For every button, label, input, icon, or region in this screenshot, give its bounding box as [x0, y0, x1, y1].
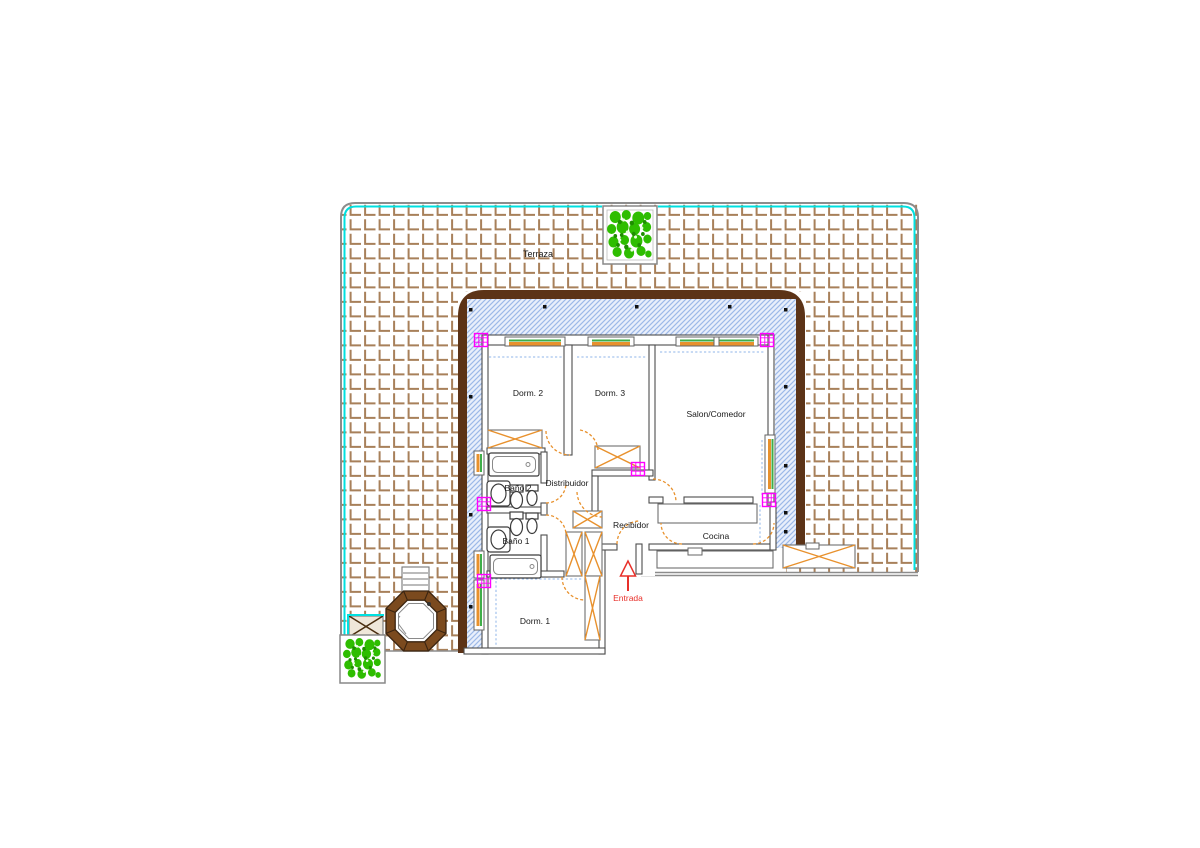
- closet-hall-top: [573, 511, 602, 528]
- label-cocina: Cocina: [703, 531, 730, 541]
- terrace-bench: [783, 543, 855, 568]
- planter-north: [603, 206, 657, 264]
- label-bano2: Baño 2: [505, 483, 532, 493]
- label-dorm3: Dorm. 3: [595, 388, 626, 398]
- label-dorm2: Dorm. 2: [513, 388, 544, 398]
- closet-hall-left: [566, 532, 582, 576]
- label-bano1: Baño 1: [503, 536, 530, 546]
- label-recibidor: Recibidor: [613, 520, 649, 530]
- hot-tub-jet: [427, 602, 431, 606]
- window-dorm3: [588, 337, 634, 346]
- label-dorm1: Dorm. 1: [520, 616, 551, 626]
- label-salon: Salon/Comedor: [686, 409, 745, 419]
- window-salon-right: [765, 435, 775, 493]
- closet-hall-right: [585, 532, 602, 576]
- label-terraza: Terraza: [523, 249, 553, 259]
- bidet-bano1: [526, 513, 538, 534]
- window-salon-top: [676, 337, 758, 346]
- hot-tub: [386, 591, 446, 651]
- label-distribuidor: Distribuidor: [546, 478, 589, 488]
- toilet-bano1: [510, 512, 523, 536]
- kitchen-counter-top: [658, 504, 757, 523]
- floor-plan-page: Terraza Dorm. 2 Dorm. 3 Salon/Comedor Di…: [0, 0, 1200, 848]
- wardrobe-dorm2: [488, 430, 542, 448]
- floor-plan-drawing: Terraza Dorm. 2 Dorm. 3 Salon/Comedor Di…: [0, 0, 1200, 848]
- wardrobe-dorm3: [595, 446, 640, 468]
- window-bano2-left: [474, 451, 484, 475]
- bathtub-bano2: [489, 453, 539, 476]
- kitchen-counter-outside: [657, 548, 773, 568]
- window-dorm2: [505, 337, 565, 346]
- planter-southwest: [340, 635, 385, 683]
- label-entrada: Entrada: [613, 593, 643, 603]
- bathtub-bano1: [490, 555, 541, 578]
- wardrobe-dorm1: [585, 576, 600, 640]
